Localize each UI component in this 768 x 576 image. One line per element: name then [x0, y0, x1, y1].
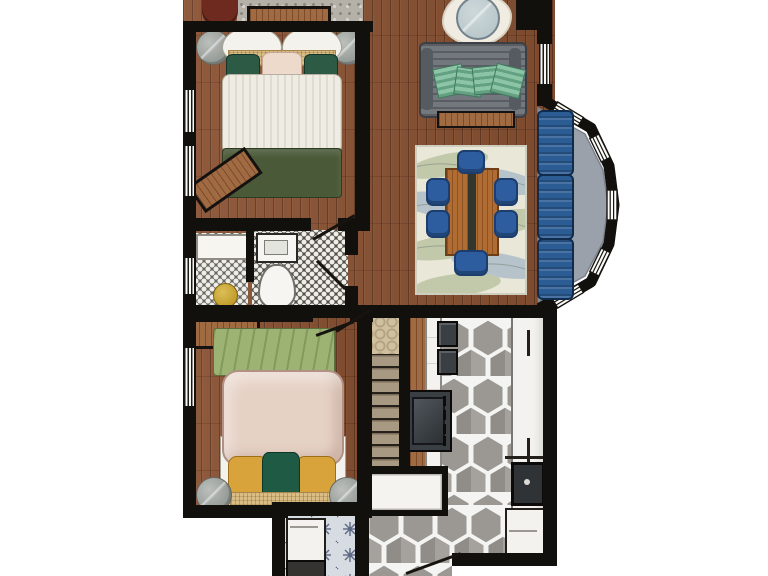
bedroom2-bed — [220, 370, 344, 512]
table-runner — [468, 170, 476, 254]
kitchen-sink — [511, 462, 545, 506]
stove-knob — [443, 436, 446, 446]
wall-laundry-left — [272, 502, 285, 576]
window-bedroom2 — [184, 348, 194, 406]
washer-line — [290, 526, 318, 528]
dining-chair-right-1 — [494, 178, 518, 206]
wall-laundry-top — [272, 502, 368, 516]
stove-top — [412, 397, 445, 445]
stove-knob — [443, 424, 446, 434]
wall-stairs-right — [399, 316, 410, 466]
dishwasher-line — [509, 530, 537, 532]
wall-bedroom1-top — [183, 21, 373, 32]
window-bathroom — [184, 258, 194, 294]
cabinet-handle — [527, 330, 530, 356]
bathroom-vanity — [196, 234, 252, 260]
wall-kitchen-right — [543, 305, 557, 566]
stove-knob — [443, 396, 446, 406]
dining-chair-bottom — [454, 250, 488, 276]
dining-chair-right-2 — [494, 210, 518, 238]
toilet — [258, 264, 296, 310]
stair-landing — [366, 474, 442, 510]
bathroom-sink — [256, 233, 298, 263]
dining-chair-top — [457, 150, 485, 174]
dining-chair-left-1 — [426, 178, 450, 206]
bay-cushion-1 — [537, 110, 574, 176]
wall-bedroom2-top — [183, 311, 313, 322]
dining-table — [445, 168, 499, 256]
sofa-console-table — [437, 111, 515, 128]
floor-plan-canvas — [0, 0, 768, 576]
sink-basin — [264, 240, 288, 255]
range-stove — [405, 390, 452, 452]
wall-bedroom2-right — [357, 311, 372, 518]
dryer — [286, 560, 326, 576]
dining-chair-left-2 — [426, 210, 450, 238]
sink-drain — [524, 479, 530, 485]
striped-duvet — [222, 74, 342, 154]
bay-cushion-2 — [537, 174, 574, 240]
cabinet-handle — [527, 438, 530, 464]
counter-edge-line — [505, 456, 543, 459]
window-living — [539, 44, 550, 84]
bay-cushion-3 — [537, 238, 574, 300]
margin-cover — [452, 566, 568, 576]
wall-bathroom-right-a — [345, 223, 358, 255]
dishwasher — [505, 508, 545, 558]
counter-fixture — [437, 349, 458, 375]
wall-kitchen-bottom — [452, 553, 557, 566]
window-bedroom1-a — [184, 90, 194, 132]
window-bedroom1-b — [184, 146, 194, 196]
sofa-arm-left — [421, 48, 433, 110]
wall-bathroom-divider — [246, 230, 254, 282]
wall-laundry-right — [355, 502, 369, 576]
stove-knob — [443, 410, 446, 420]
washer — [286, 518, 326, 564]
wall-block-top-right — [516, 0, 552, 30]
sofa — [419, 42, 527, 118]
counter-fixture — [437, 321, 458, 347]
wall-bedroom1-right — [355, 21, 370, 223]
wall-kitchen-top — [368, 305, 556, 318]
